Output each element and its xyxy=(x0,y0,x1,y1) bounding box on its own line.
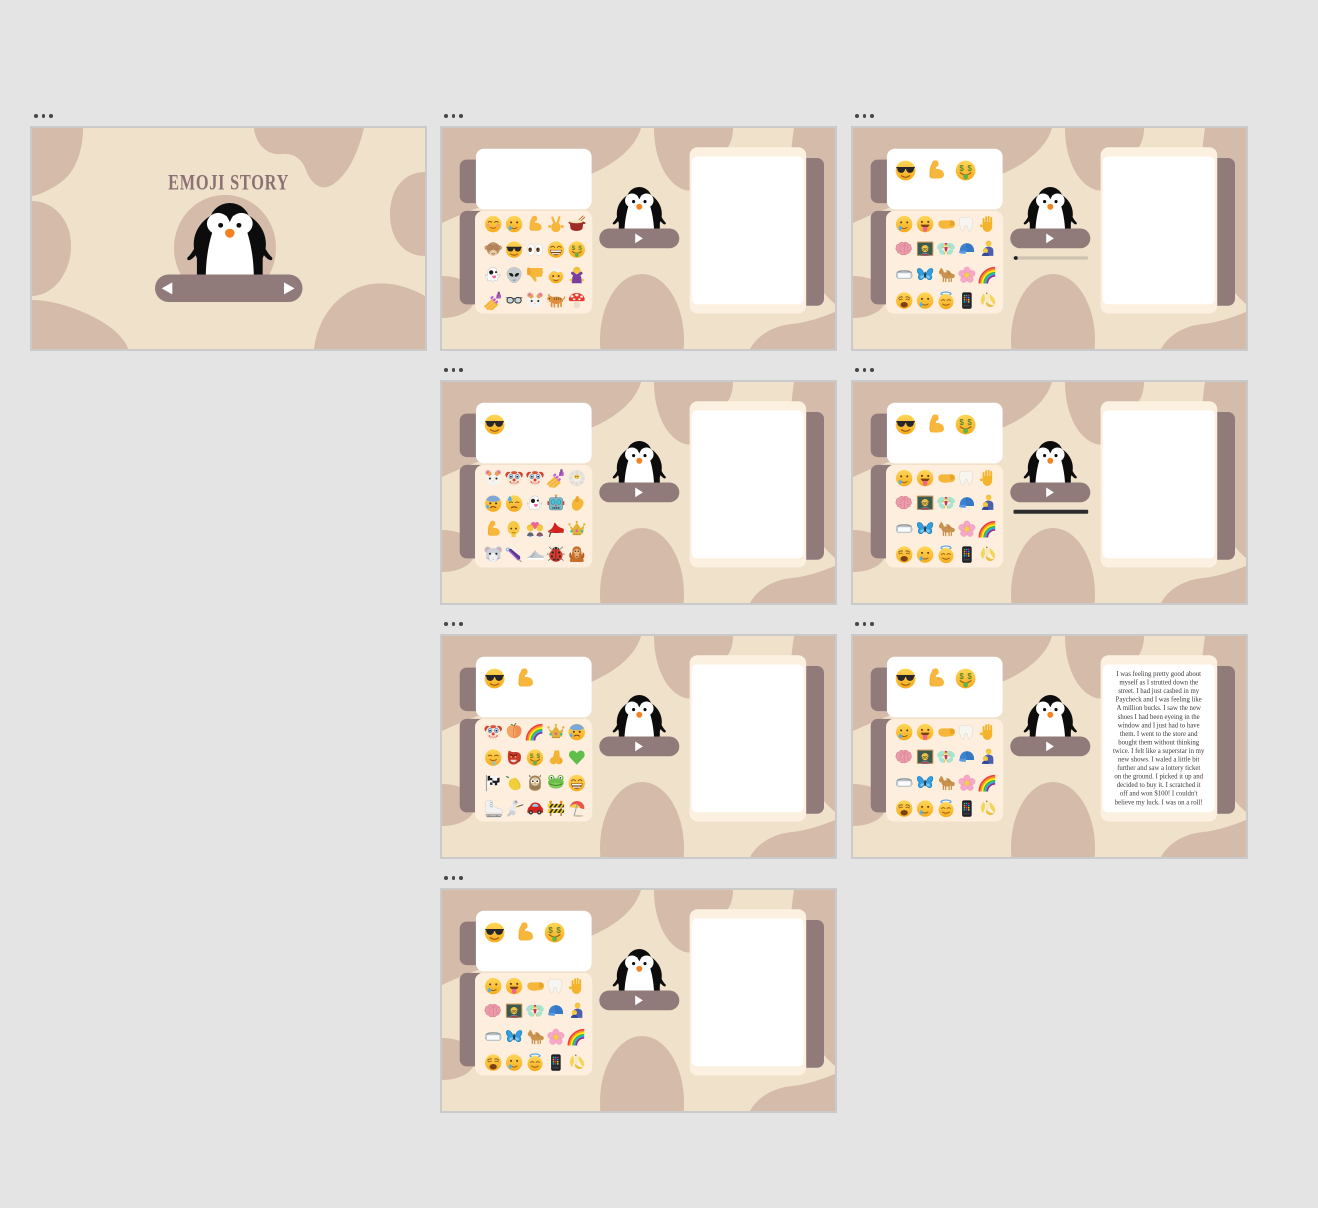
svg-text:I was feeling pretty good abou: I was feeling pretty good aboutmyself as… xyxy=(1113,671,1205,806)
svg-text:EMOJI STORY: EMOJI STORY xyxy=(168,170,289,195)
